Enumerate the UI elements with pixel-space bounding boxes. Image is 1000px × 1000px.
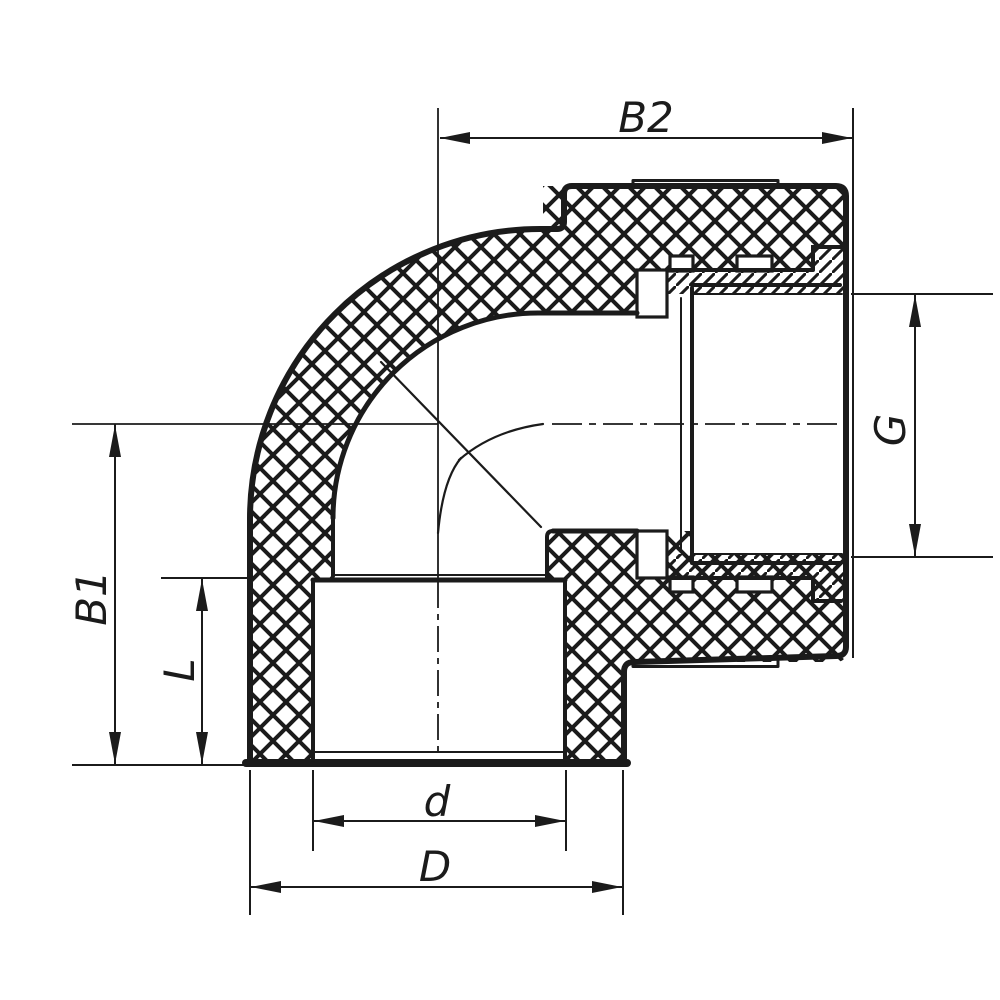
dim-label-b1: B1 <box>67 570 116 626</box>
dim-label-d: d <box>424 777 451 826</box>
technical-drawing-canvas: B2 G B1 L d D <box>0 0 1000 1000</box>
dim-label-outer-d: D <box>419 842 451 891</box>
dim-label-l: L <box>155 658 204 681</box>
elbow-fitting-drawing: B2 G B1 L d D <box>0 0 1000 1000</box>
dim-label-g: G <box>866 414 915 447</box>
dim-label-b2: B2 <box>618 93 674 142</box>
